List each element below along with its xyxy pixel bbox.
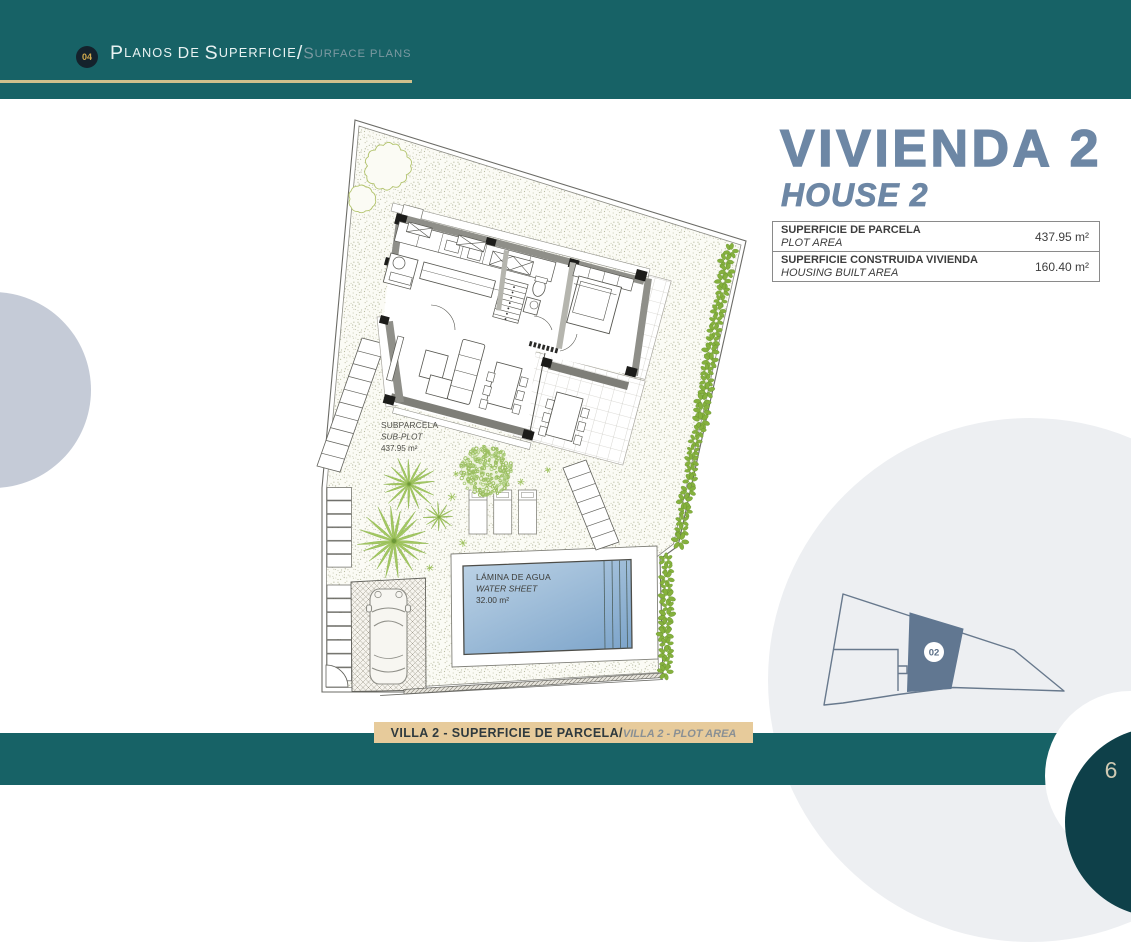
svg-text:32.00 m²: 32.00 m² xyxy=(476,595,509,605)
svg-text:SUB-PLOT: SUB-PLOT xyxy=(381,432,423,442)
svg-text:02: 02 xyxy=(929,648,940,659)
svg-text:SUBPARCELA: SUBPARCELA xyxy=(381,420,438,430)
svg-text:437.95 m²: 437.95 m² xyxy=(381,444,418,453)
svg-text:WATER SHEET: WATER SHEET xyxy=(476,584,538,594)
svg-text:LÁMINA DE AGUA: LÁMINA DE AGUA xyxy=(476,572,551,582)
